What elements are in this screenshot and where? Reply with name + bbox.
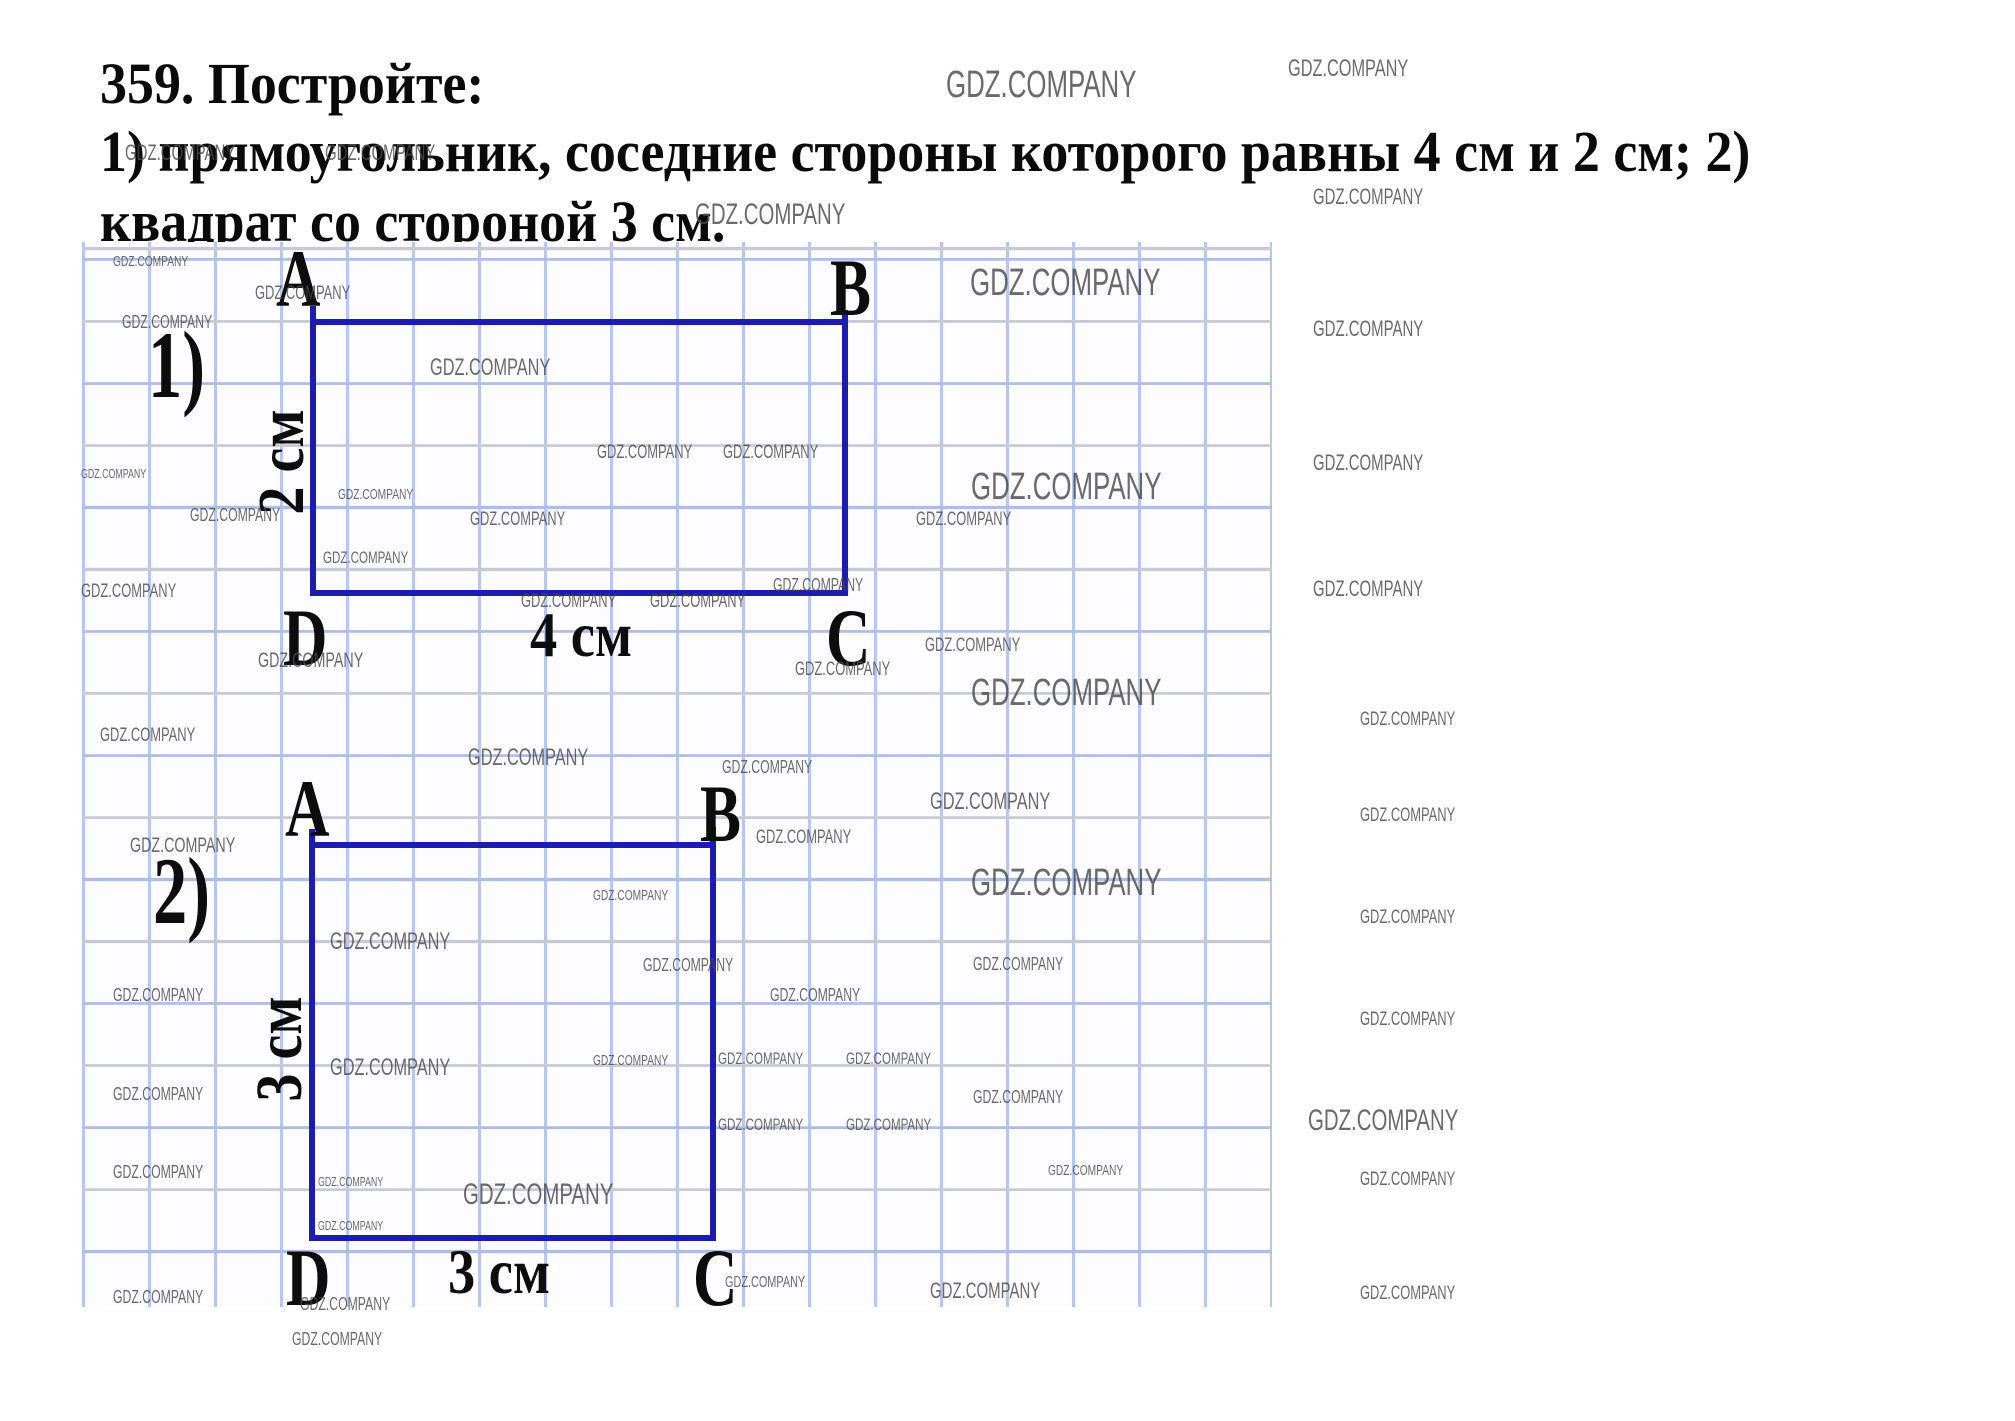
watermark: GDZ.COMPANY: [463, 1180, 613, 1210]
figure-2-vertex-a: A: [285, 768, 329, 850]
watermark: GDZ.COMPANY: [1313, 578, 1423, 600]
watermark: GDZ.COMPANY: [971, 864, 1161, 902]
watermark: GDZ.COMPANY: [650, 592, 745, 611]
watermark: GDZ.COMPANY: [756, 828, 851, 847]
watermark: GDZ.COMPANY: [722, 758, 812, 776]
watermark: GDZ.COMPANY: [190, 506, 280, 524]
figure-2-height-label: 3 см: [247, 996, 313, 1101]
watermark: GDZ.COMPANY: [718, 1050, 803, 1067]
watermark: GDZ.COMPANY: [773, 576, 863, 594]
watermark: GDZ.COMPANY: [81, 467, 146, 480]
problem-title: 359. Постройте:: [100, 52, 484, 117]
watermark: GDZ.COMPANY: [946, 66, 1136, 104]
watermark: GDZ.COMPANY: [468, 746, 588, 770]
watermark: GDZ.COMPANY: [973, 955, 1063, 973]
watermark: GDZ.COMPANY: [597, 443, 692, 462]
watermark: GDZ.COMPANY: [1360, 710, 1455, 729]
watermark: GDZ.COMPANY: [1308, 1106, 1458, 1136]
watermark: GDZ.COMPANY: [470, 510, 565, 529]
figure-1-height-label: 2 см: [249, 409, 315, 514]
figure-1-index: 1): [148, 318, 205, 413]
watermark: GDZ.COMPANY: [1288, 57, 1408, 81]
watermark: GDZ.COMPANY: [725, 1275, 805, 1291]
watermark: GDZ.COMPANY: [521, 592, 616, 611]
watermark: GDZ.COMPANY: [1360, 806, 1455, 825]
watermark: GDZ.COMPANY: [1313, 452, 1423, 474]
watermark: GDZ.COMPANY: [1360, 908, 1455, 927]
textbook-page: 359. Постройте: 1) прямоугольник, соседн…: [0, 0, 2015, 1421]
watermark: GDZ.COMPANY: [113, 1163, 203, 1181]
watermark: GDZ.COMPANY: [970, 264, 1160, 302]
watermark: GDZ.COMPANY: [1360, 1284, 1455, 1303]
figure-2-vertex-b: B: [700, 773, 741, 855]
watermark: GDZ.COMPANY: [718, 1116, 803, 1133]
watermark: GDZ.COMPANY: [723, 443, 818, 462]
watermark: GDZ.COMPANY: [846, 1116, 931, 1133]
watermark: GDZ.COMPANY: [300, 1295, 390, 1313]
watermark: GDZ.COMPANY: [770, 986, 860, 1004]
figure-1-width-label: 4 см: [530, 603, 632, 667]
watermark: GDZ.COMPANY: [292, 1330, 382, 1348]
watermark: GDZ.COMPANY: [695, 200, 845, 230]
watermark: GDZ.COMPANY: [113, 986, 203, 1004]
watermark: GDZ.COMPANY: [1313, 318, 1423, 340]
watermark: GDZ.COMPANY: [130, 835, 235, 856]
watermark: GDZ.COMPANY: [1360, 1010, 1455, 1029]
watermark: GDZ.COMPANY: [323, 549, 408, 566]
watermark: GDZ.COMPANY: [795, 660, 890, 679]
watermark: GDZ.COMPANY: [593, 1053, 668, 1068]
watermark: GDZ.COMPANY: [846, 1050, 931, 1067]
watermark: GDZ.COMPANY: [325, 142, 435, 164]
watermark: GDZ.COMPANY: [1313, 186, 1423, 208]
watermark: GDZ.COMPANY: [930, 1280, 1040, 1302]
watermark: GDZ.COMPANY: [973, 1088, 1063, 1106]
watermark: GDZ.COMPANY: [1360, 1170, 1455, 1189]
watermark: GDZ.COMPANY: [971, 468, 1161, 506]
watermark: GDZ.COMPANY: [81, 582, 176, 601]
watermark: GDZ.COMPANY: [643, 956, 733, 974]
figure-1-vertex-a: A: [276, 238, 320, 320]
watermark: GDZ.COMPANY: [925, 636, 1020, 655]
watermark: GDZ.COMPANY: [255, 284, 350, 303]
watermark: GDZ.COMPANY: [1048, 1163, 1123, 1178]
watermark: GDZ.COMPANY: [125, 142, 235, 164]
watermark: GDZ.COMPANY: [593, 888, 668, 903]
watermark: GDZ.COMPANY: [330, 930, 450, 954]
watermark: GDZ.COMPANY: [318, 1219, 383, 1232]
watermark: GDZ.COMPANY: [930, 790, 1050, 814]
watermark: GDZ.COMPANY: [122, 313, 212, 331]
figure-2-index: 2): [153, 844, 210, 939]
watermark: GDZ.COMPANY: [113, 1085, 203, 1103]
watermark: GDZ.COMPANY: [338, 487, 413, 502]
watermark: GDZ.COMPANY: [113, 254, 188, 269]
watermark: GDZ.COMPANY: [916, 510, 1011, 529]
figure-1-vertex-b: B: [830, 247, 871, 329]
watermark: GDZ.COMPANY: [113, 1288, 203, 1306]
watermark: GDZ.COMPANY: [430, 356, 550, 380]
watermark: GDZ.COMPANY: [258, 650, 363, 671]
watermark: GDZ.COMPANY: [100, 726, 195, 745]
figure-2-width-label: 3 см: [448, 1240, 550, 1304]
watermark: GDZ.COMPANY: [318, 1175, 383, 1188]
watermark: GDZ.COMPANY: [330, 1056, 450, 1080]
watermark: GDZ.COMPANY: [971, 674, 1161, 712]
